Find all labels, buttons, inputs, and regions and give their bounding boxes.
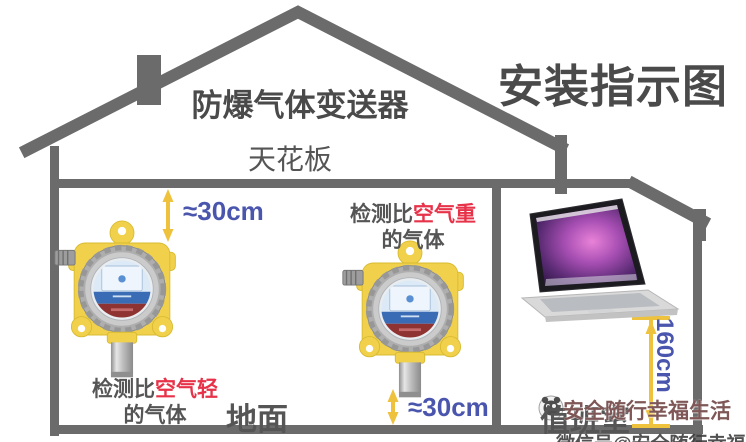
lighter-than-air-note: 检测比空气轻 的气体 (72, 377, 238, 429)
heavier-note-prefix: 检测比 (350, 203, 413, 226)
top-clearance-label: ≈30cm (183, 196, 264, 227)
lighter-note-highlight: 空气轻 (155, 378, 218, 401)
heavier-than-air-note: 检测比空气重 的气体 (330, 202, 496, 254)
mount-height-label: 160cm (650, 318, 678, 393)
clearance-arrow-bottom (388, 389, 399, 425)
heavier-note-highlight: 空气重 (413, 203, 476, 226)
lighter-note-line2: 的气体 (124, 404, 187, 427)
left-wall (50, 146, 59, 436)
clearance-arrow-top (163, 189, 174, 242)
laptop (522, 199, 678, 322)
device-title: 防爆气体变送器 (172, 80, 428, 125)
gas-detector-left (55, 221, 176, 377)
chimney (137, 55, 161, 105)
ceiling-label: 天花板 (228, 138, 352, 178)
installation-diagram: 安装指示图 防爆气体变送器 天花板 ≈30cm 检测比空气重 的气体 检测比空气… (0, 0, 746, 442)
watermark-brand-text: 安全随行幸福生活 (563, 395, 731, 425)
heavier-note-line2: 的气体 (382, 229, 445, 252)
ground-label: 地面 (226, 394, 288, 439)
ceiling-line (50, 179, 638, 188)
watermark-bottom-text: 微信号@安全随行幸福生活 (556, 429, 746, 442)
lighter-note-prefix: 检测比 (92, 378, 155, 401)
bottom-clearance-label: ≈30cm (408, 392, 489, 423)
gas-detector-middle (343, 241, 464, 397)
page-title: 安装指示图 (498, 50, 746, 115)
